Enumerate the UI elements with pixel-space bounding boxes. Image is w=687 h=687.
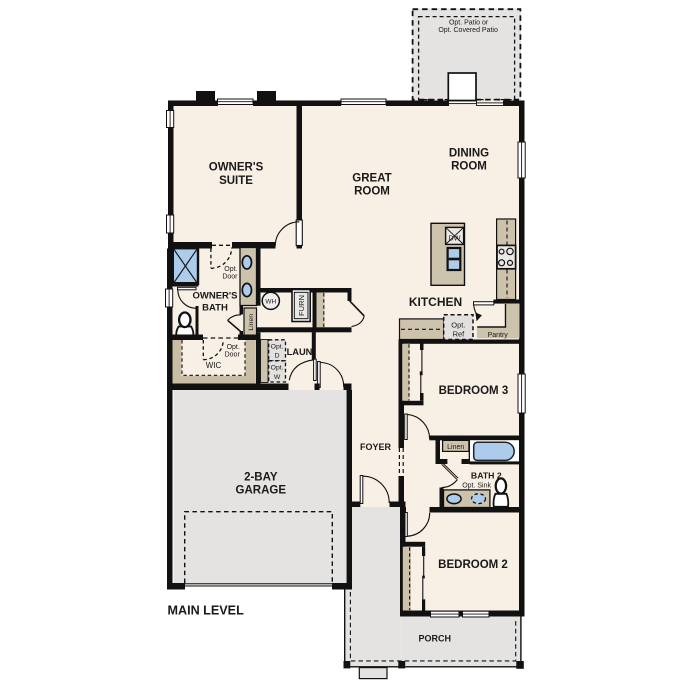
- svg-text:W: W: [274, 374, 281, 381]
- svg-text:ROOM: ROOM: [354, 186, 390, 198]
- svg-text:Door: Door: [222, 273, 238, 280]
- svg-text:WIC: WIC: [206, 361, 222, 370]
- svg-text:PORCH: PORCH: [418, 634, 451, 644]
- svg-text:BATH: BATH: [202, 303, 228, 314]
- svg-text:Opt.: Opt.: [224, 266, 237, 273]
- svg-text:LAUN: LAUN: [287, 347, 313, 357]
- svg-text:Opt. Patio or: Opt. Patio or: [449, 19, 489, 26]
- svg-text:MAIN LEVEL: MAIN LEVEL: [168, 604, 245, 618]
- svg-text:2-BAY: 2-BAY: [244, 472, 278, 484]
- svg-text:WH: WH: [265, 298, 276, 305]
- svg-text:GARAGE: GARAGE: [236, 485, 287, 497]
- svg-text:D: D: [275, 353, 280, 360]
- svg-text:Linen: Linen: [248, 314, 255, 331]
- svg-text:Ref: Ref: [453, 329, 466, 338]
- svg-text:ROOM: ROOM: [451, 161, 487, 173]
- svg-text:FURN: FURN: [297, 295, 306, 316]
- svg-text:OWNER'S: OWNER'S: [192, 291, 237, 302]
- svg-text:Opt.: Opt.: [271, 344, 284, 351]
- svg-text:BEDROOM 2: BEDROOM 2: [438, 559, 508, 571]
- svg-text:Opt.: Opt.: [451, 320, 465, 329]
- svg-text:DW: DW: [448, 233, 460, 242]
- svg-text:GREAT: GREAT: [352, 173, 391, 185]
- svg-text:BATH 2: BATH 2: [471, 470, 502, 480]
- svg-text:Opt.: Opt.: [271, 365, 284, 372]
- svg-text:OWNER'S: OWNER'S: [209, 162, 264, 174]
- svg-text:SUITE: SUITE: [219, 175, 253, 187]
- svg-text:Opt. Covered Patio: Opt. Covered Patio: [438, 27, 498, 34]
- svg-text:Opt. Sink: Opt. Sink: [462, 483, 491, 490]
- svg-text:Opt.: Opt.: [227, 344, 240, 351]
- svg-text:BEDROOM 3: BEDROOM 3: [439, 385, 509, 397]
- svg-text:KITCHEN: KITCHEN: [409, 295, 462, 309]
- svg-text:FOYER: FOYER: [360, 442, 392, 452]
- svg-text:DINING: DINING: [449, 148, 489, 160]
- svg-text:Pantry: Pantry: [488, 332, 509, 339]
- svg-text:Linen: Linen: [447, 444, 464, 451]
- svg-text:Door: Door: [225, 351, 241, 358]
